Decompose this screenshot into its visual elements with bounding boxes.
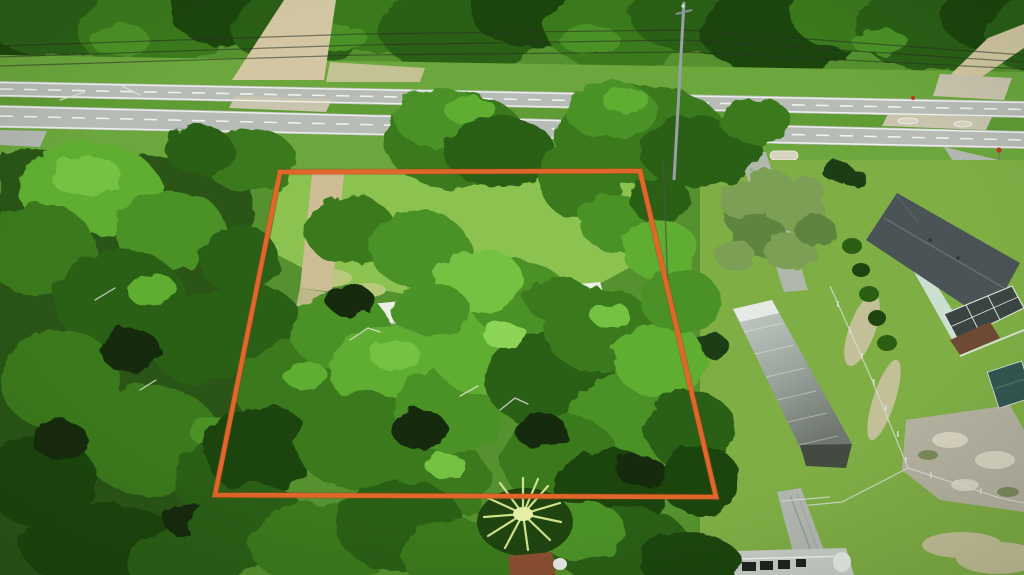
aerial-photo (0, 0, 1024, 575)
vignette-overlay (0, 0, 1024, 575)
